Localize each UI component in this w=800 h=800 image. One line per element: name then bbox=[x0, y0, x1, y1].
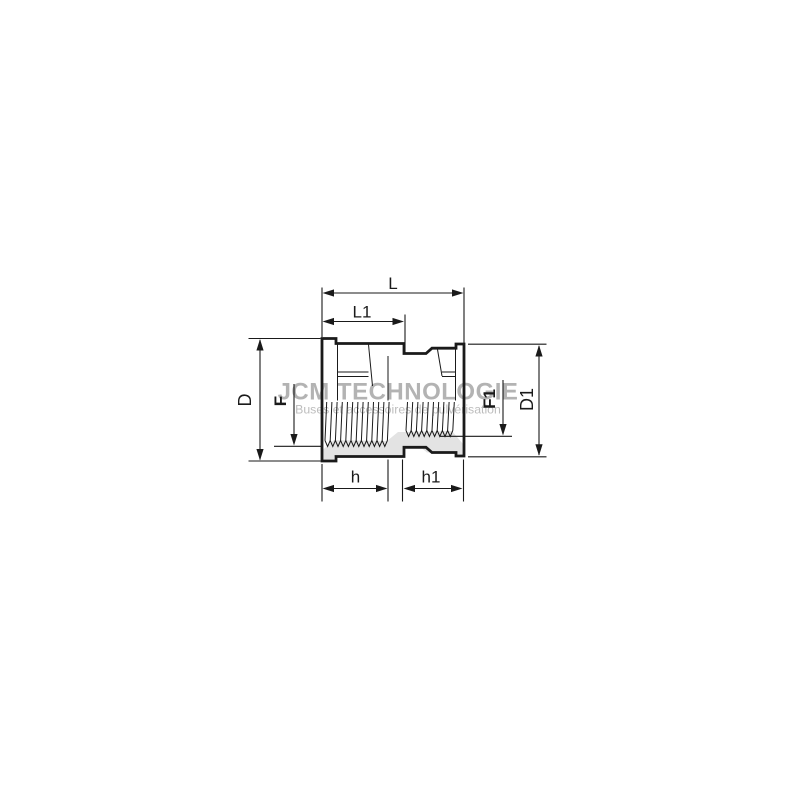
dim-F1-label: F1 bbox=[480, 389, 499, 409]
dim-F-label: F bbox=[271, 396, 290, 406]
dim-D1-label: D1 bbox=[517, 388, 537, 411]
technical-drawing: JCM TECHNOLOGIE Buses et accessoires de … bbox=[0, 0, 800, 800]
dim-D-label: D bbox=[235, 394, 255, 407]
drawing-canvas: JCM TECHNOLOGIE Buses et accessoires de … bbox=[0, 0, 800, 800]
dim-L1-label: L1 bbox=[353, 303, 372, 322]
dim-h1-label: h1 bbox=[422, 468, 441, 487]
dim-h-label: h bbox=[351, 468, 360, 487]
dim-L-label: L bbox=[388, 274, 397, 293]
